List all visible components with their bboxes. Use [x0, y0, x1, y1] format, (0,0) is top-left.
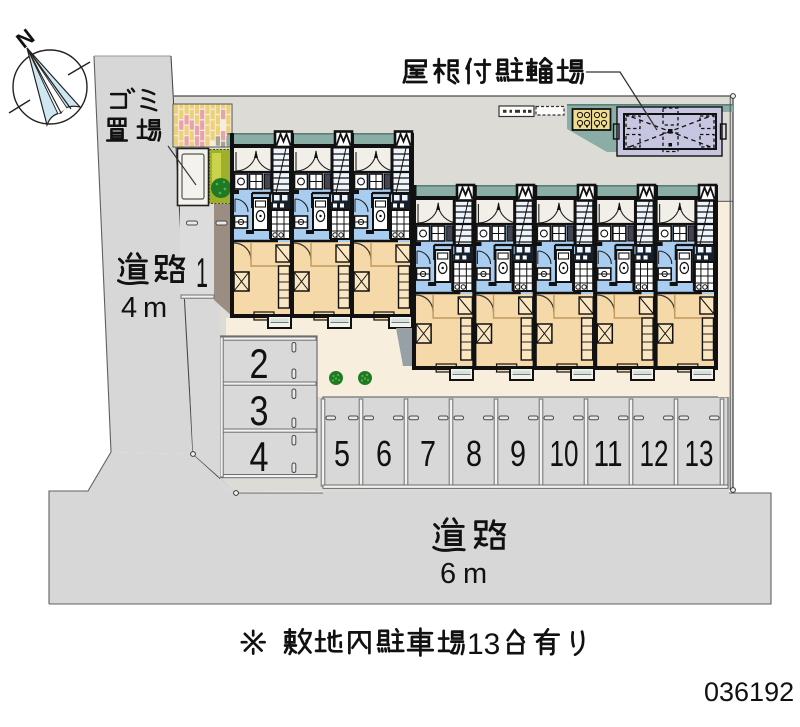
svg-text:4: 4	[250, 433, 269, 480]
svg-text:12: 12	[640, 433, 669, 474]
svg-text:1: 1	[196, 249, 208, 296]
svg-text:2: 2	[250, 340, 269, 387]
svg-text:6: 6	[376, 433, 392, 474]
svg-text:036192: 036192	[704, 677, 794, 707]
svg-text:7: 7	[420, 433, 436, 474]
svg-text:8: 8	[466, 433, 482, 474]
svg-text:11: 11	[594, 433, 623, 474]
svg-text:m: m	[143, 292, 167, 324]
svg-text:9: 9	[510, 433, 526, 474]
svg-text:13: 13	[467, 628, 500, 661]
svg-text:3: 3	[250, 387, 269, 434]
svg-text:m: m	[463, 558, 487, 590]
svg-text:6: 6	[440, 558, 456, 590]
svg-text:4: 4	[121, 292, 137, 324]
svg-text:5: 5	[334, 433, 350, 474]
svg-text:10: 10	[550, 433, 579, 474]
svg-text:13: 13	[685, 433, 714, 474]
